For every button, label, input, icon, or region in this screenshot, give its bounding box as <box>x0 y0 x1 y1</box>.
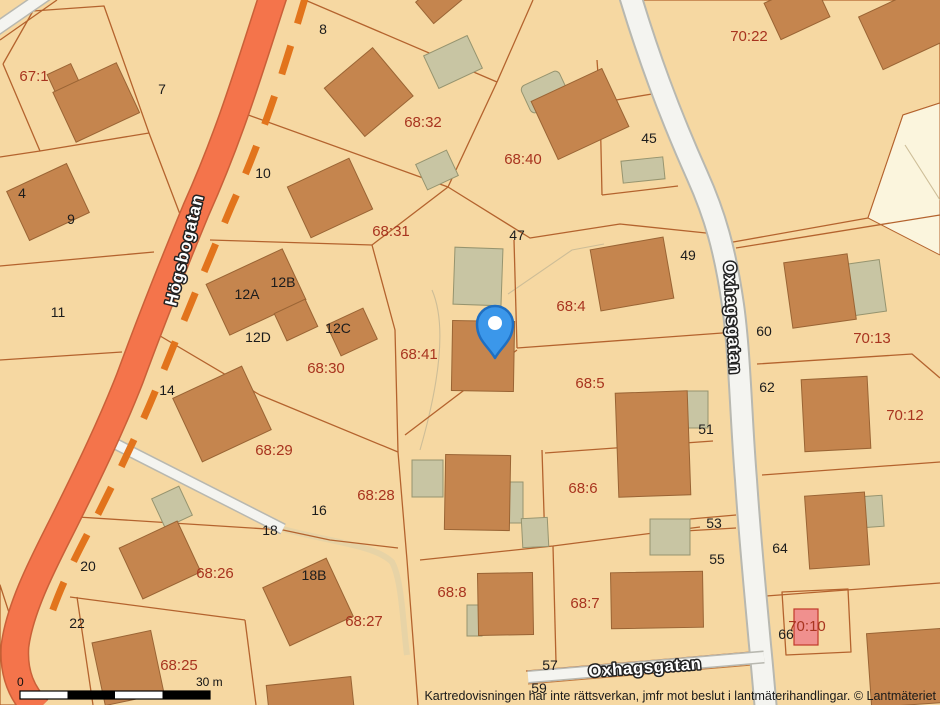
parcel-label: 68:40 <box>504 151 542 168</box>
parcel-label: 68:6 <box>568 480 597 497</box>
parcel-label: 68:8 <box>437 584 466 601</box>
building <box>444 454 510 530</box>
parcel-label: 68:32 <box>404 114 442 131</box>
building <box>801 376 871 451</box>
map-canvas[interactable]: 67:1 68:32 68:40 70:22 68:31 68:4 68:30 … <box>0 0 940 705</box>
house-number: 60 <box>756 323 772 339</box>
parcel-label: 68:26 <box>196 565 234 582</box>
house-number: 12C <box>325 320 351 336</box>
outbuilding <box>453 247 503 306</box>
scale-end-label: 30 m <box>196 675 223 689</box>
house-number: 18 <box>262 522 278 538</box>
outbuilding <box>521 517 548 547</box>
house-number: 18B <box>302 567 327 583</box>
parcel-label: 68:25 <box>160 657 198 674</box>
parcel-label: 68:29 <box>255 442 293 459</box>
building <box>611 571 704 629</box>
building <box>477 573 533 636</box>
parcel-label: 70:13 <box>853 330 891 347</box>
house-number: 47 <box>509 227 525 243</box>
parcel-label: 67:1 <box>19 68 48 85</box>
house-number: 12D <box>245 329 271 345</box>
parcel-label: 68:27 <box>345 613 383 630</box>
parcel-label: 70:12 <box>886 407 924 424</box>
house-number: 7 <box>158 81 166 97</box>
parcel-label: 68:30 <box>307 360 345 377</box>
house-number: 12A <box>235 286 261 302</box>
building <box>784 254 857 328</box>
house-number: 62 <box>759 379 775 395</box>
parcel-label: 68:41 <box>400 346 438 363</box>
scale-start-label: 0 <box>17 675 24 689</box>
house-number: 10 <box>255 165 271 181</box>
building <box>805 492 870 569</box>
house-number: 12B <box>271 274 296 290</box>
house-number: 66 <box>778 626 794 642</box>
parcel-label: 70:10 <box>788 618 826 635</box>
house-number: 9 <box>67 211 75 227</box>
house-number: 45 <box>641 130 657 146</box>
parcel-label: 68:7 <box>570 595 599 612</box>
house-number: 11 <box>51 304 66 320</box>
house-number: 20 <box>80 558 96 574</box>
parcel-label: 68:28 <box>357 487 395 504</box>
parcel-label: 68:31 <box>372 223 410 240</box>
house-number: 8 <box>319 21 327 37</box>
house-number: 64 <box>772 540 788 556</box>
house-number: 22 <box>69 615 85 631</box>
building <box>590 237 674 311</box>
house-number: 55 <box>709 551 725 567</box>
outbuilding <box>650 519 690 555</box>
parcel-label: 70:22 <box>730 28 768 45</box>
house-number: 53 <box>706 515 722 531</box>
house-number: 14 <box>159 382 175 398</box>
building <box>615 391 691 497</box>
house-number: 49 <box>680 247 696 263</box>
house-number: 57 <box>542 657 558 673</box>
house-number: 16 <box>311 502 327 518</box>
house-number: 4 <box>18 185 26 201</box>
map-view: 67:1 68:32 68:40 70:22 68:31 68:4 68:30 … <box>0 0 940 705</box>
outbuilding <box>621 157 665 183</box>
house-number: 51 <box>698 421 714 437</box>
parcel-label: 68:4 <box>556 298 585 315</box>
attribution-text: Kartredovisningen har inte rättsverkan, … <box>424 689 936 703</box>
outbuilding <box>412 460 443 497</box>
pin-center-dot <box>488 316 502 330</box>
parcel-label: 68:5 <box>575 375 604 392</box>
